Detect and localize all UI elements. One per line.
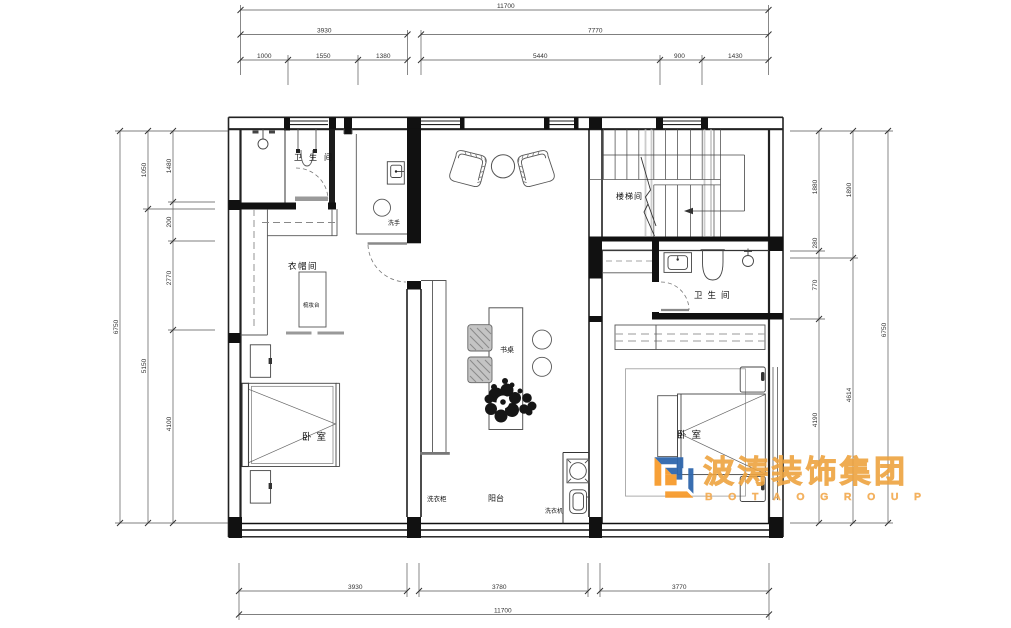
svg-text:阳台: 阳台 [488,493,504,503]
svg-text:3780: 3780 [492,584,507,591]
svg-text:200: 200 [166,216,173,227]
svg-text:洗手: 洗手 [388,219,400,227]
svg-text:1050: 1050 [141,162,148,177]
svg-text:洗衣柜: 洗衣柜 [427,494,447,503]
svg-text:6750: 6750 [881,322,888,337]
svg-text:梳妆台: 梳妆台 [303,301,320,309]
svg-text:波涛装饰集团: 波涛装饰集团 [703,455,908,490]
svg-text:1550: 1550 [316,53,331,60]
svg-text:5150: 5150 [141,358,148,373]
svg-text:卫生间: 卫生间 [294,152,339,162]
svg-text:11700: 11700 [497,3,515,10]
svg-text:4614: 4614 [846,387,853,402]
svg-text:书桌: 书桌 [500,345,514,354]
svg-text:900: 900 [674,53,685,60]
svg-text:卧室: 卧室 [302,431,331,443]
svg-text:4100: 4100 [166,416,173,431]
svg-text:5440: 5440 [533,53,548,60]
svg-text:11700: 11700 [494,608,512,615]
svg-text:770: 770 [812,279,819,290]
svg-text:6750: 6750 [113,319,120,334]
svg-text:1430: 1430 [728,53,743,60]
svg-text:1380: 1380 [376,53,391,60]
svg-text:衣帽间: 衣帽间 [288,261,318,271]
svg-text:3930: 3930 [348,584,363,591]
svg-text:7770: 7770 [588,28,603,35]
svg-text:1480: 1480 [166,158,173,173]
svg-text:洗衣机: 洗衣机 [545,507,563,515]
svg-text:1000: 1000 [257,53,272,60]
svg-text:2770: 2770 [166,270,173,285]
svg-text:3930: 3930 [317,28,332,35]
svg-text:卫生间: 卫生间 [694,290,735,300]
svg-text:280: 280 [812,237,819,248]
svg-text:1890: 1890 [846,182,853,197]
svg-text:BOTAOGROUP: BOTAOGROUP [705,491,937,503]
svg-text:4190: 4190 [812,412,819,427]
svg-text:卧室: 卧室 [677,429,706,441]
svg-text:楼梯间: 楼梯间 [616,191,643,201]
svg-text:1880: 1880 [812,179,819,194]
svg-text:3770: 3770 [672,584,687,591]
